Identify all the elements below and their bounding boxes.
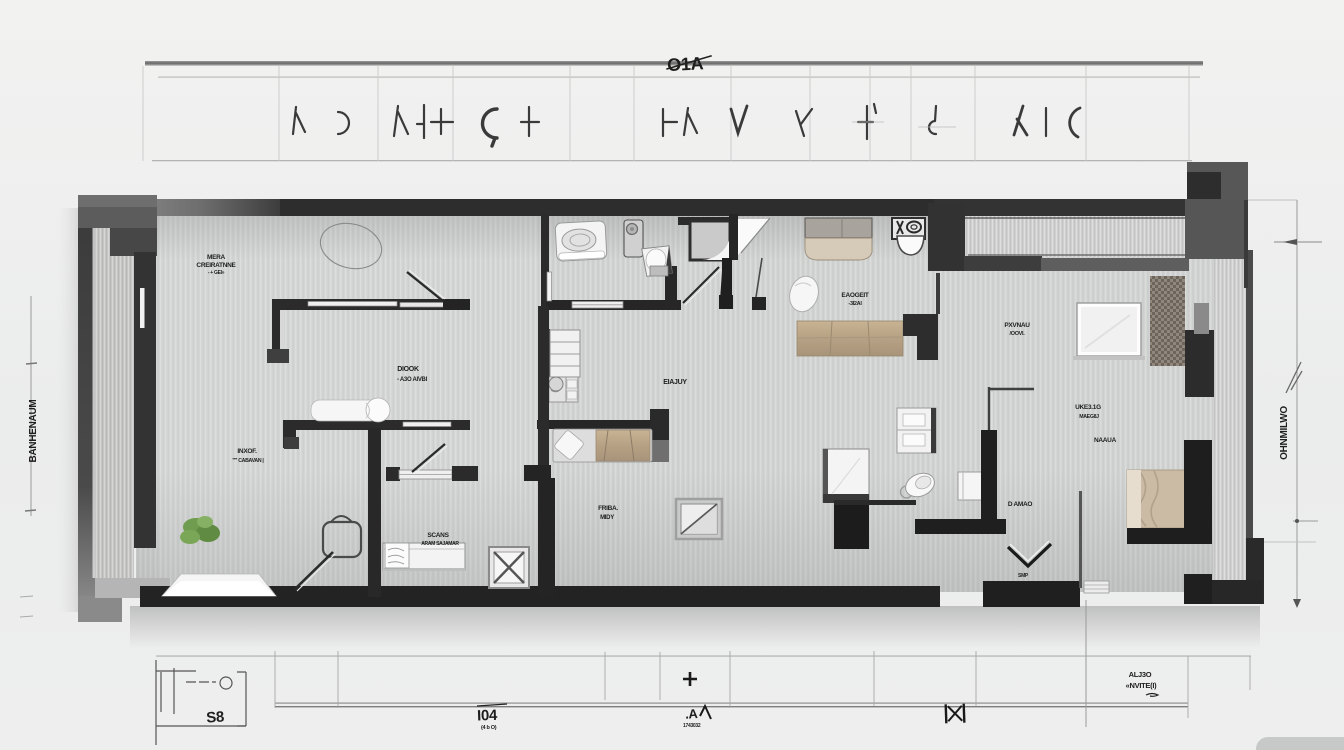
svg-text:/OOVI.: /OOVI.	[1009, 331, 1025, 337]
svg-text:S8: S8	[206, 708, 225, 726]
svg-text:D AMAO: D AMAO	[1008, 501, 1033, 508]
svg-text:NAAUA: NAAUA	[1094, 437, 1117, 444]
svg-text:I04: I04	[477, 707, 498, 725]
svg-text:OHNMILWO: OHNMILWO	[1279, 406, 1290, 460]
svg-text:BANHENAUM: BANHENAUM	[28, 400, 39, 463]
svg-text:ALJ3O: ALJ3O	[1129, 670, 1152, 679]
svg-text:PXVNAU: PXVNAU	[1004, 322, 1030, 329]
svg-text:1743032: 1743032	[683, 723, 701, 729]
svg-text:DIOOK: DIOOK	[397, 366, 419, 373]
svg-text:SCANS: SCANS	[427, 532, 449, 539]
svg-text:ARAM SAJAMAR: ARAM SAJAMAR	[421, 541, 459, 547]
svg-text:-3I2AI: -3I2AI	[848, 301, 862, 307]
svg-text:- + GEI»: - + GEI»	[208, 270, 225, 276]
svg-text:''''' CABAVAN |: ''''' CABAVAN |	[232, 458, 264, 464]
svg-text:- A3O AIVBI: - A3O AIVBI	[397, 377, 428, 383]
svg-text:(4 b O): (4 b O)	[481, 725, 497, 731]
svg-text:«NVITE(I): «NVITE(I)	[1126, 681, 1157, 690]
svg-text:MIDY: MIDY	[600, 515, 614, 521]
svg-text:FRIBA.: FRIBA.	[598, 505, 618, 512]
svg-text:MERA: MERA	[207, 254, 226, 261]
svg-text:MAEG8J: MAEG8J	[1079, 414, 1099, 420]
svg-text:INXOF.: INXOF.	[237, 448, 257, 455]
svg-text:.A: .A	[685, 706, 699, 722]
svg-text:EAOGEIT: EAOGEIT	[841, 292, 868, 299]
svg-text:UKE3.1G: UKE3.1G	[1075, 404, 1101, 411]
svg-text:CREIRATNNE: CREIRATNNE	[196, 262, 236, 269]
svg-text:SMP: SMP	[1018, 573, 1029, 579]
svg-text:EIAJUY: EIAJUY	[663, 379, 687, 386]
